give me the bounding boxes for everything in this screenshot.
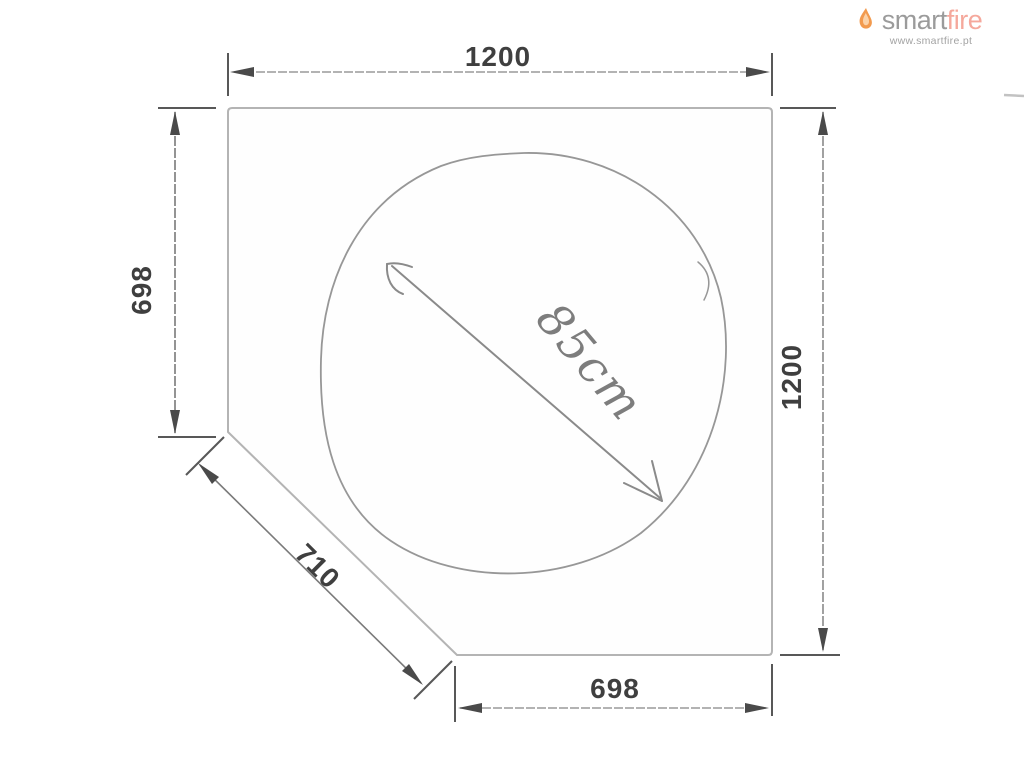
dimension-bottom: 698 bbox=[455, 664, 772, 722]
logo-text-fire: fire bbox=[947, 5, 983, 35]
drawing-canvas: 85cm 1200 698 1200 bbox=[0, 0, 1024, 768]
dimension-label-right: 1200 bbox=[776, 344, 807, 410]
dimension-label-left: 698 bbox=[126, 265, 157, 315]
scanned-technical-drawing-page: 85cm 1200 698 1200 bbox=[0, 0, 1024, 768]
dimension-label-top: 1200 bbox=[465, 41, 531, 72]
dimension-label-bottom: 698 bbox=[590, 673, 640, 704]
smartfire-logo: smartfire www.smartfire.pt bbox=[856, 7, 1006, 47]
dimension-left: 698 bbox=[126, 108, 216, 437]
dimension-label-diagonal: 710 bbox=[289, 538, 346, 595]
logo-website-url: www.smartfire.pt bbox=[856, 35, 1006, 47]
scan-artifact-dash bbox=[1004, 95, 1024, 96]
dimension-right: 1200 bbox=[776, 108, 840, 655]
dimension-top: 1200 bbox=[228, 41, 772, 96]
logo-text-smart: smart bbox=[882, 5, 947, 35]
